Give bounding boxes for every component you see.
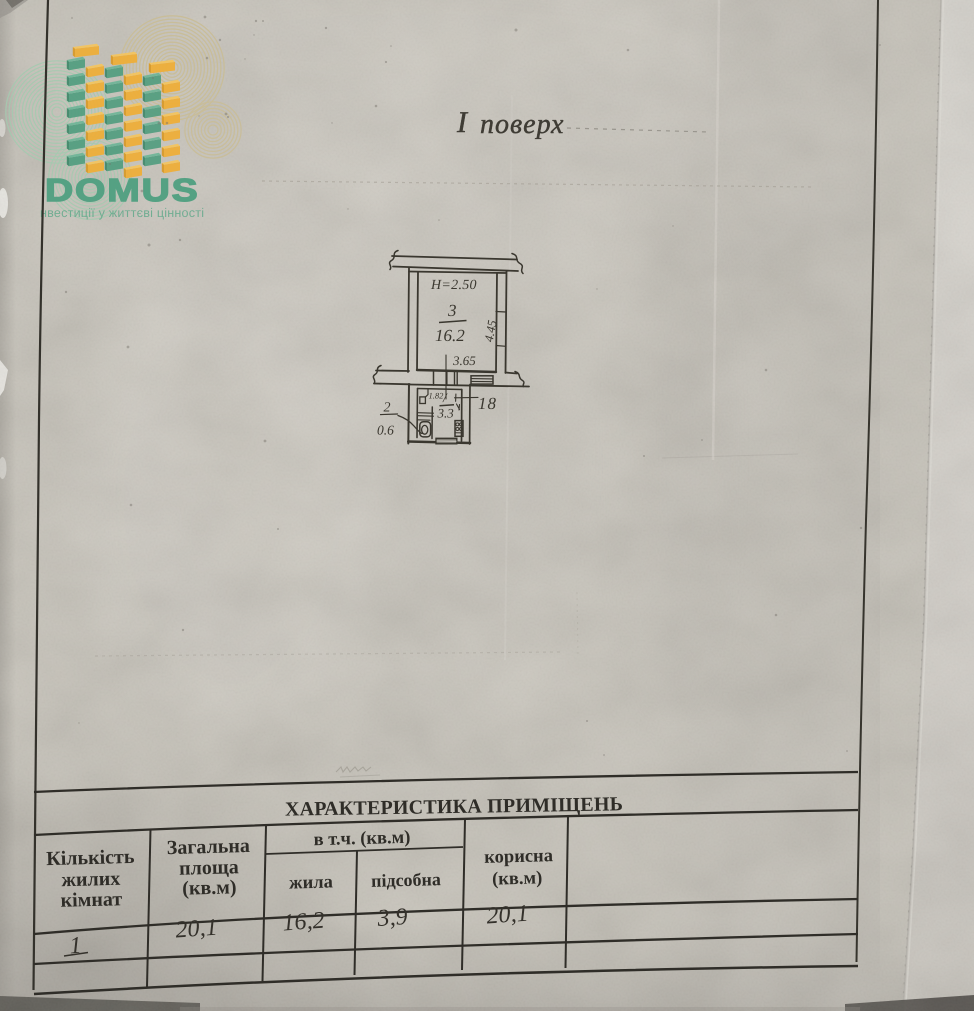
svg-text:3,9: 3,9 <box>376 904 409 932</box>
svg-text:18: 18 <box>478 394 497 413</box>
svg-text:1.82: 1.82 <box>429 391 445 401</box>
svg-text:3.3: 3.3 <box>437 406 455 421</box>
svg-text:корисна: корисна <box>484 846 553 868</box>
svg-text:підсобна: підсобна <box>371 869 441 891</box>
svg-text:20,1: 20,1 <box>175 915 219 944</box>
svg-text:(кв.м): (кв.м) <box>492 868 543 889</box>
svg-text:в т.ч. (кв.м): в т.ч. (кв.м) <box>313 828 410 851</box>
svg-text:20,1: 20,1 <box>486 901 530 930</box>
svg-text:0.6: 0.6 <box>377 423 394 438</box>
svg-text:нвестиції у життєві цінності: нвестиції у життєві цінності <box>40 206 204 220</box>
svg-text:DOMUS: DOMUS <box>45 172 199 208</box>
svg-text:поверх: поверх <box>480 109 564 140</box>
svg-text:кімнат: кімнат <box>60 888 122 912</box>
svg-text:3.65: 3.65 <box>452 353 476 368</box>
svg-text:Кількість: Кількість <box>46 846 135 870</box>
svg-text:(кв.м): (кв.м) <box>182 876 237 899</box>
svg-text:16.2: 16.2 <box>435 326 465 345</box>
svg-text:H=2.50: H=2.50 <box>430 278 477 293</box>
svg-text:3: 3 <box>447 301 457 320</box>
svg-text:жила: жила <box>289 872 333 893</box>
svg-text:16,2: 16,2 <box>282 908 326 937</box>
svg-text:2: 2 <box>384 401 391 416</box>
